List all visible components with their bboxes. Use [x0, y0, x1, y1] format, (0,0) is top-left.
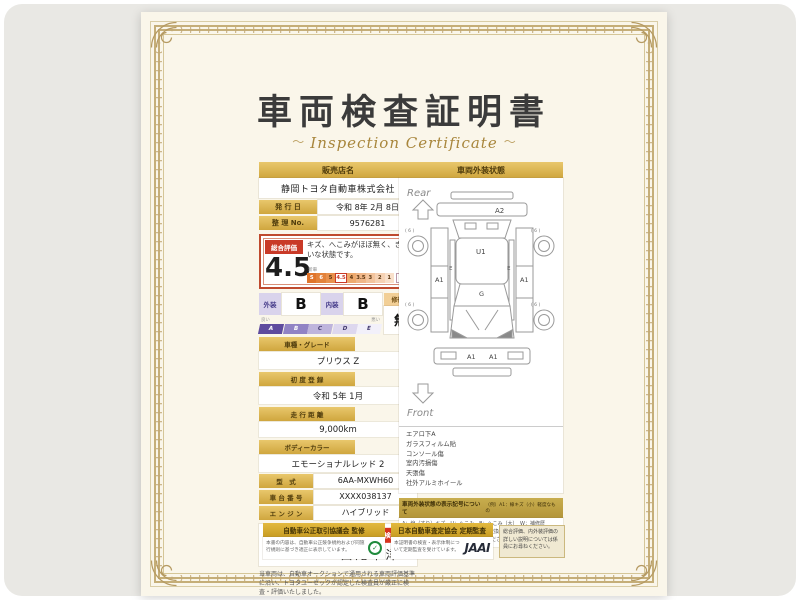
diagram-rear-label: Rear: [407, 188, 431, 199]
rating-score: 4.5: [265, 254, 303, 283]
roof-panel-shape: [456, 238, 508, 284]
jaai-audit-title: 日本自動車査定協会 定期監査: [391, 523, 493, 537]
rear-direction-arrow-icon: [413, 200, 433, 219]
front-direction-arrow-icon: [413, 384, 433, 403]
jaai-audit-block: 日本自動車査定協会 定期監査 本証明書の検査・表示体制について定期監査を受けてい…: [391, 523, 493, 559]
rating-scale-bar: S 6 5 4.5 4 3.5 3 2 1: [307, 273, 394, 283]
damage-mark: A1: [435, 276, 444, 284]
damage-mark: A1: [489, 353, 498, 361]
damage-mark: U1: [476, 248, 486, 256]
grade-scale-labels: 良い 悪い: [259, 317, 382, 323]
rating-score-block: 総合評価 4.5: [265, 240, 303, 283]
rating-scale-cell: 1: [385, 273, 394, 283]
spec-model-code-row: 型 式 6AA-MXWH60: [259, 474, 417, 488]
spec-first-registration: 初 度 登 録 令和 5年 1月: [259, 372, 417, 404]
ref-no-label: 整 理 No.: [259, 216, 317, 230]
damage-mark: E: [449, 266, 453, 272]
damage-mark: A1: [520, 276, 529, 284]
rating-scale-cell: S: [307, 273, 316, 283]
equipment-note: 天張傷: [406, 469, 556, 479]
issue-date-label: 発 行 日: [259, 200, 317, 214]
corner-flourish-icon: [629, 20, 659, 50]
spec-chassis-no-row: 車 台 番 号 XXXX038137: [259, 490, 417, 504]
corner-flourish-icon: [629, 558, 659, 588]
spec-body-color: ボディーカラー エモーショナルレッド 2: [259, 440, 417, 472]
grade-scale-cell: A: [258, 324, 284, 334]
ref-no-row: 整 理 No. 9576281: [259, 216, 417, 230]
headrest-shape: [487, 223, 498, 229]
fair-trade-council-title: 自動車公正取引協議会 監修: [263, 523, 385, 537]
grade-scale-good-label: 良い: [261, 317, 270, 323]
headrest-shape: [465, 223, 476, 229]
grade-scale-bar: A B C D E: [259, 324, 382, 334]
grade-main: 外装 B 内装 B 良い 悪い A B C D E: [259, 293, 382, 334]
inspection-disclaimer: 当車両は、自動車オークションで通用される車両評価基準に沿い、トヨタユーゼックが認…: [259, 570, 417, 597]
jaai-audit-note: 本証明書の検査・表示体制について定期監査を受けています。: [394, 541, 461, 555]
dealer-header: 販売店名: [259, 162, 417, 178]
rating-scale-cell: 4: [347, 273, 356, 283]
fog-lamp-shape: [441, 352, 456, 359]
grade-scale-cell: E: [356, 324, 382, 334]
equipment-note: エアロ下A: [406, 430, 556, 440]
exterior-condition-column: 車両外装状態 Rear A2 U1: [399, 162, 563, 547]
staff-inquiry-note: 総合評価、内外装評価の詳しい説明については係員にお尋ねください。: [499, 525, 565, 558]
tire-depth-mark: ( 6 ): [531, 228, 540, 234]
certificate-subtitle-row: ～Inspection Certificate～: [141, 133, 667, 152]
spec-value: 令和 5年 1月: [259, 387, 417, 404]
spec-label: 車 台 番 号: [259, 490, 313, 504]
issue-date-row: 発 行 日 令和 8年 2月 8日: [259, 200, 417, 214]
rear-gate-shape: [437, 203, 527, 216]
corner-flourish-icon: [149, 558, 179, 588]
fair-trade-council-block: 自動車公正取引協議会 監修 本書の内容は、自動車公正競争規約および同施行規則に基…: [263, 523, 385, 559]
tire-depth-mark: ( 6 ): [405, 302, 414, 308]
equipment-note: ガラスフィルム貼: [406, 440, 556, 450]
inspection-certificate-sheet: 車両検査証明書 ～Inspection Certificate～ 販売店名 静岡…: [141, 12, 667, 596]
legend-example: （例）A1：線キズ（小）軽度なもの: [485, 502, 560, 514]
spec-label: ボディーカラー: [259, 440, 355, 454]
tire-depth-mark: ( 6 ): [405, 228, 414, 234]
tire-depth-mark: ( 6 ): [531, 302, 540, 308]
exterior-grade-value: B: [282, 293, 320, 315]
spec-mileage: 走 行 距 離 9,000km: [259, 407, 417, 437]
equipment-note: 室内汚損傷: [406, 459, 556, 469]
rating-scale-cell: 3.5: [356, 273, 365, 283]
grade-scale-cell: D: [332, 324, 358, 334]
grade-scale-bad-label: 悪い: [371, 317, 380, 323]
grade-scale-cell: B: [283, 324, 309, 334]
rating-scale-cell-highlighted: 4.5: [335, 273, 346, 283]
photo-background: 車両検査証明書 ～Inspection Certificate～ 販売店名 静岡…: [4, 4, 796, 596]
spec-label: 初 度 登 録: [259, 372, 355, 386]
grade-scale-cell: C: [307, 324, 333, 334]
certificate-subtitle: Inspection Certificate: [310, 134, 497, 152]
rating-comment: キズ、へこみがほぼ無く、きれいな状態です。: [307, 240, 411, 267]
spec-value: エモーショナルレッド 2: [259, 455, 417, 472]
certificate-title: 車両検査証明書: [141, 84, 667, 135]
interior-grade-value: B: [344, 293, 382, 315]
damage-mark: G: [479, 290, 484, 298]
rear-spoiler-shape: [451, 192, 513, 199]
spec-value: プリウス Z: [259, 352, 417, 369]
spec-label: 走 行 距 離: [259, 407, 355, 421]
car-exterior-diagram: Rear A2 U1 A: [399, 178, 563, 422]
rating-scale-cell: 2: [375, 273, 384, 283]
interior-grade-label: 内装: [321, 293, 343, 315]
spec-value: 9,000km: [259, 422, 417, 437]
corner-flourish-icon: [149, 20, 179, 50]
spec-model-grade: 車種・グレード プリウス Z: [259, 337, 417, 369]
spec-label: エ ン ジ ン: [259, 506, 313, 520]
exterior-condition-header: 車両外装状態: [399, 162, 563, 178]
spec-label: 車種・グレード: [259, 337, 355, 351]
rating-scale-cell: 3: [366, 273, 375, 283]
rating-scale-cell: 5: [326, 273, 335, 283]
border-scroll-top: [169, 27, 639, 33]
damage-mark: A1: [467, 353, 476, 361]
subtitle-ornament-right: ～: [498, 133, 522, 150]
equipment-note: 社外アルミホイール: [406, 479, 556, 489]
rating-header: 総合評価: [265, 240, 303, 254]
dealer-name: 静岡トヨタ自動車株式会社: [259, 178, 417, 198]
equipment-notes-list: エアロ下A ガラスフィルム貼 コンソール傷 室内汚損傷 天張傷 社外アルミホイー…: [399, 426, 563, 493]
front-lip-shape: [453, 368, 511, 376]
spec-engine-row: エ ン ジ ン ハイブリッド: [259, 506, 417, 520]
car-diagram-box: Rear A2 U1 A: [399, 178, 563, 493]
overall-rating-box: 総合評価 4.5 キズ、へこみがほぼ無く、きれいな状態です。 新車 低 S 6 …: [259, 234, 417, 289]
legend-title: 車両外装状態の表示記号について: [402, 500, 485, 516]
exterior-grade-label: 外装: [259, 293, 281, 315]
fair-trade-council-note: 本書の内容は、自動車公正競争規約および同施行規則に基づき適正に表示しています。: [266, 541, 365, 555]
damage-mark: E: [507, 266, 511, 272]
diagram-front-label: Front: [407, 408, 434, 419]
jaai-logo: JAAI: [464, 541, 490, 555]
spec-label: 型 式: [259, 474, 313, 488]
grade-box: 外装 B 内装 B 良い 悪い A B C D E 修復歴: [259, 293, 417, 334]
fog-lamp-shape: [508, 352, 523, 359]
equipment-note: コンソール傷: [406, 450, 556, 460]
rear-window-shape: [453, 220, 511, 238]
hood-shape: [450, 306, 514, 338]
symbol-legend-header: 車両外装状態の表示記号について （例）A1：線キズ（小）軽度なもの: [399, 498, 563, 518]
fair-trade-council-logo-icon: ✓: [368, 541, 382, 555]
subtitle-ornament-left: ～: [286, 133, 310, 150]
rating-scale-cell: 6: [316, 273, 325, 283]
rating-detail-block: キズ、へこみがほぼ無く、きれいな状態です。 新車 低 S 6 5 4.5 4 3…: [307, 240, 411, 283]
damage-mark: A2: [495, 207, 504, 215]
